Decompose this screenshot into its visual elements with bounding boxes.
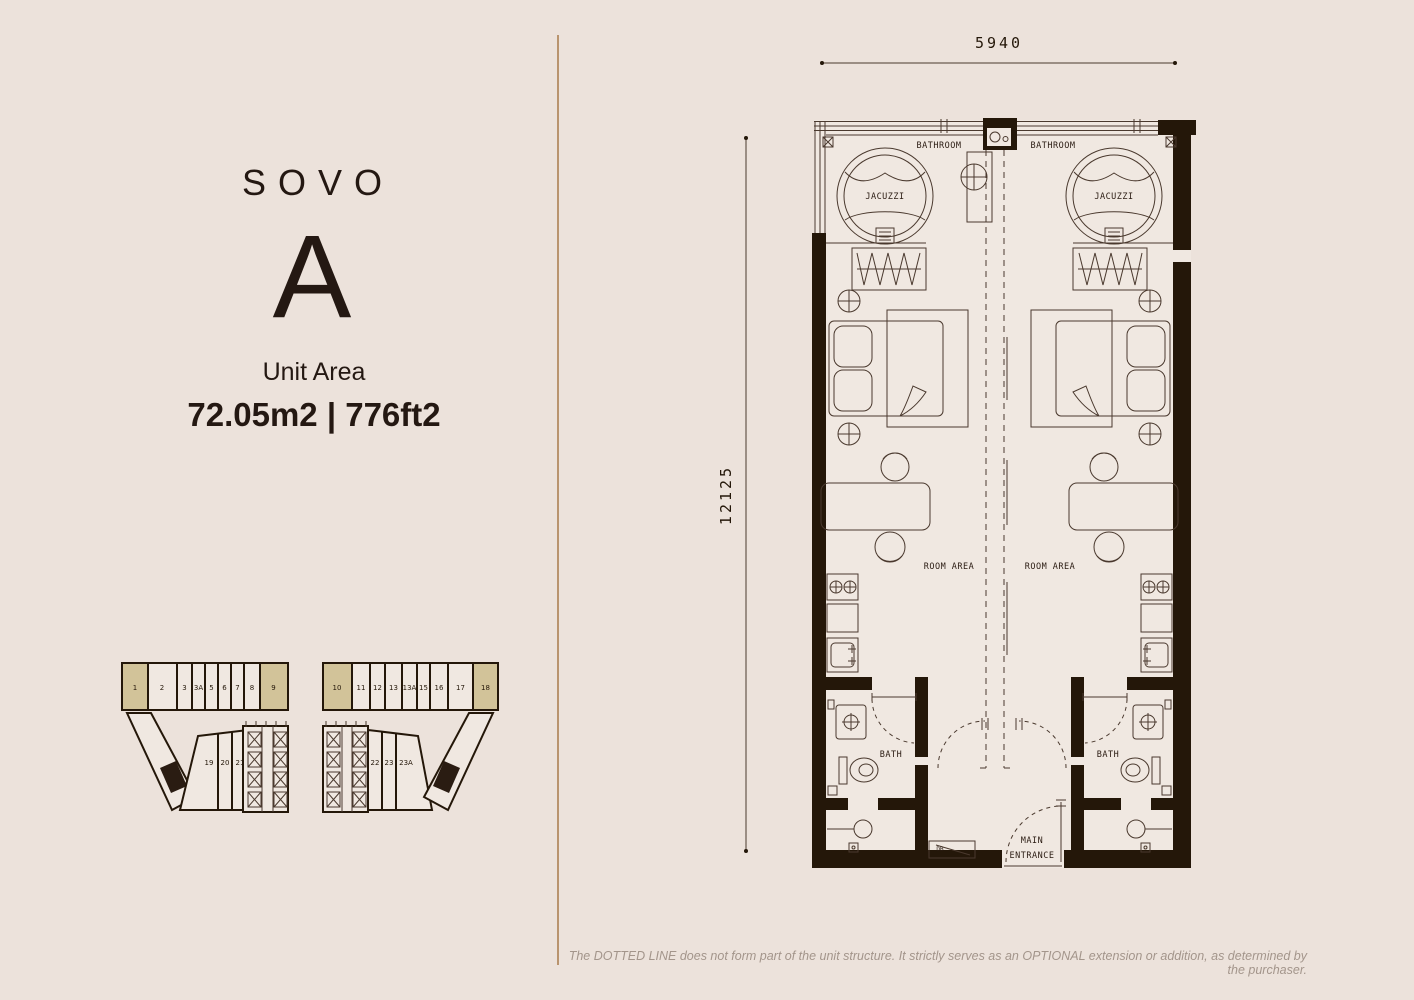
width-dimension: 5940	[820, 34, 1177, 65]
room-area-right-label: ROOM AREA	[1025, 562, 1076, 572]
key-plan-unit-label: 5	[209, 684, 213, 692]
main-floor-plan: DB BATHROOM BATHROOM JACUZZI JACUZZI ROO…	[717, 34, 1196, 868]
key-plan-unit-label: 12	[373, 684, 382, 692]
key-plan-unit-label: 3A	[194, 684, 203, 692]
key-plan-left-block: 1 2 3 3A 5 6 7 8 9 19 20 21	[122, 663, 288, 812]
key-plan-unit-label: 20	[221, 759, 230, 767]
key-plan-lower-units-right	[368, 730, 432, 810]
bathroom-left-label: BATHROOM	[917, 141, 962, 151]
key-plan-unit-label: 7	[235, 684, 239, 692]
room-area-left-label: ROOM AREA	[924, 562, 975, 572]
bath-left-label: BATH	[880, 750, 902, 760]
db-label: DB	[936, 846, 944, 853]
main-entrance-label-1: MAIN	[1021, 836, 1043, 846]
key-plan-unit-label: 23	[385, 759, 394, 767]
key-plan-unit-label: 9	[271, 684, 275, 692]
height-dimension-value: 12125	[717, 465, 735, 525]
key-plan-unit-label: 15	[419, 684, 428, 692]
key-plan-right-block: 10 11 12 13 13A 15 16 17 18	[323, 663, 498, 812]
key-plan: 1 2 3 3A 5 6 7 8 9 19 20 21	[122, 663, 498, 812]
key-plan-unit-label: 10	[333, 684, 342, 692]
key-plan-unit-label: 13	[389, 684, 398, 692]
key-plan-unit-label: 8	[250, 684, 254, 692]
key-plan-unit-label: 2	[160, 684, 164, 692]
key-plan-right-lift-core	[323, 721, 368, 812]
floor-plan-sheet: SOVO A Unit Area 72.05m2 | 776ft2 The DO…	[0, 0, 1414, 1000]
width-dimension-value: 5940	[975, 34, 1023, 52]
height-dimension: 12125	[717, 136, 748, 853]
key-plan-unit-label: 18	[481, 684, 490, 692]
key-plan-unit-label: 3	[182, 684, 186, 692]
key-plan-unit-label: 23A	[399, 759, 413, 767]
key-plan-unit-label: 6	[222, 684, 227, 692]
key-plan-unit-label: 16	[435, 684, 444, 692]
key-plan-unit-label: 11	[357, 684, 366, 692]
key-plan-unit-label: 22	[371, 759, 380, 767]
jacuzzi-right-label: JACUZZI	[1094, 192, 1133, 202]
bath-right-label: BATH	[1097, 750, 1119, 760]
unit-interior	[814, 120, 1182, 868]
key-plan-lower-units-left	[180, 730, 248, 810]
center-service-block	[983, 118, 1017, 150]
key-plan-left-lift-core	[243, 721, 288, 812]
key-plan-unit-label: 19	[205, 759, 214, 767]
plan-graphics: DB BATHROOM BATHROOM JACUZZI JACUZZI ROO…	[0, 0, 1414, 1000]
main-entrance-label-2: ENTRANCE	[1010, 851, 1055, 861]
jacuzzi-left-label: JACUZZI	[865, 192, 904, 202]
key-plan-unit-label: 1	[133, 684, 137, 692]
key-plan-unit-label: 13A	[403, 684, 417, 692]
bathroom-right-label: BATHROOM	[1031, 141, 1076, 151]
key-plan-unit-label: 17	[456, 684, 465, 692]
key-plan-right-wing	[424, 713, 493, 810]
